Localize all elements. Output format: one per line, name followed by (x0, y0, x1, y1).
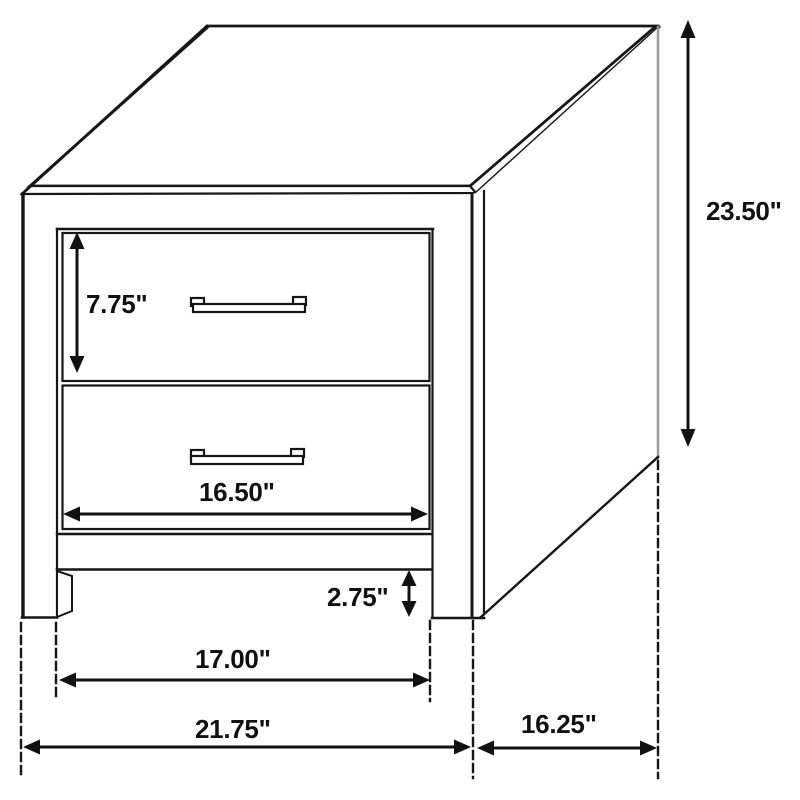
left-leg (22, 571, 72, 618)
dim-label-drawer-width: 16.50" (199, 480, 275, 504)
left-leg-inner-side (57, 571, 72, 617)
bottom-rail (57, 534, 432, 570)
dim-arrow-overall-height (681, 20, 696, 447)
dim-label-base-clearance: 2.75" (327, 585, 388, 609)
tabletop-front-edge (22, 186, 476, 194)
dim-label-side-depth: 16.25" (521, 712, 597, 736)
arrowhead-right (413, 673, 430, 688)
arrowhead-right (454, 740, 471, 755)
drawer-2 (63, 386, 430, 530)
arrowhead-up (681, 20, 696, 38)
drawer-2-handle-bar (191, 456, 303, 464)
dimension-diagram: 7.75" 23.50" 16.50" 2.75" 17.00" 21.75" … (0, 0, 800, 800)
dim-label-drawer-height: 7.75" (86, 292, 147, 316)
diagram-canvas (0, 0, 800, 800)
arrowhead-left (59, 673, 76, 688)
drawer-1-handle-bar (193, 304, 305, 312)
dim-arrow-side-depth (477, 741, 657, 756)
arrowhead-down (681, 429, 696, 447)
dim-label-overall-width: 21.75" (195, 717, 271, 741)
arrowhead-left (477, 741, 494, 756)
nightstand-drawing (22, 26, 659, 618)
arrowhead-left (23, 740, 40, 755)
arrowhead-up (402, 570, 417, 586)
dim-arrow-base-clearance (402, 570, 417, 617)
dim-label-overall-height: 23.50" (706, 199, 782, 223)
arrowhead-down (402, 601, 417, 617)
arrowhead-right (640, 741, 657, 756)
dim-arrow-leg-span (59, 673, 430, 688)
dim-label-leg-span: 17.00" (195, 647, 271, 671)
